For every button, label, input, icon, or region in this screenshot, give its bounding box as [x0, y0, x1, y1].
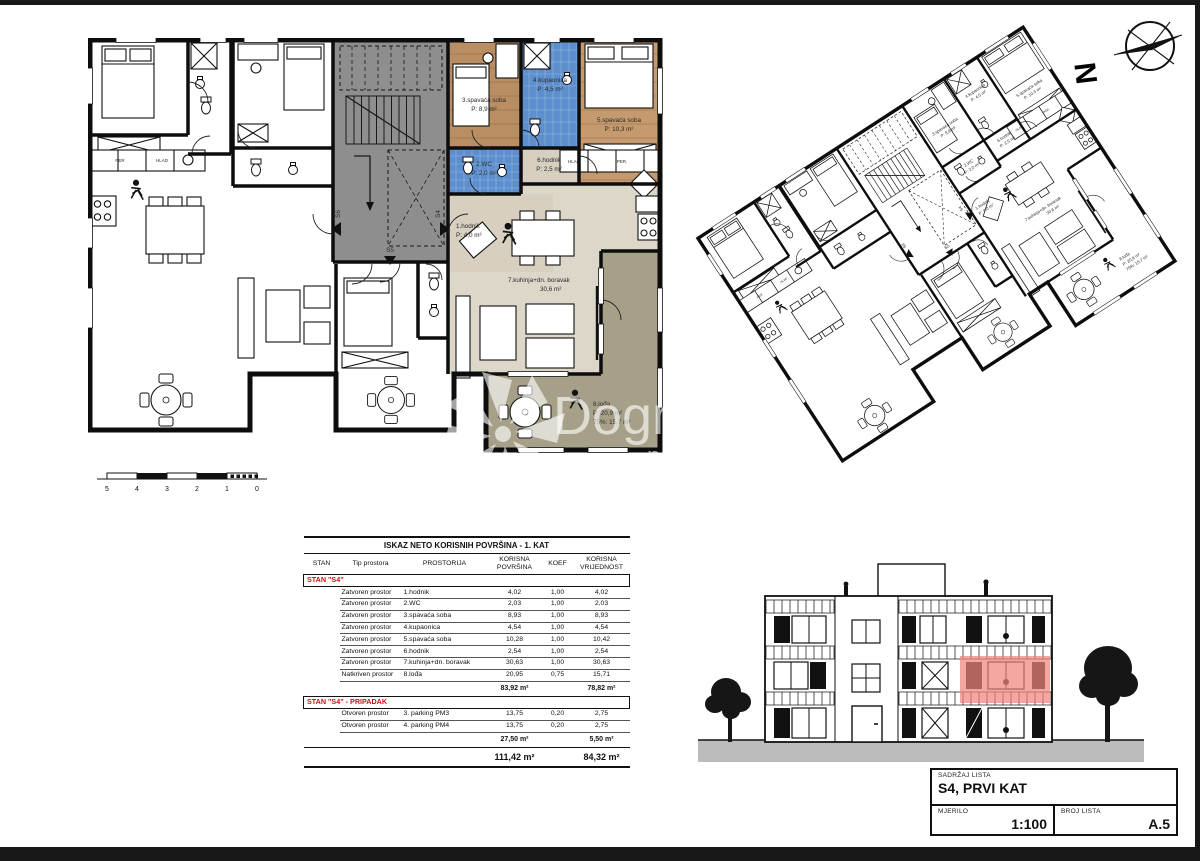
- scale-bar: 5 4 3 2 1 0: [95, 462, 270, 500]
- table-row: STAN "S4": [304, 574, 630, 586]
- col-prostorija: PROSTORIJA: [402, 554, 488, 575]
- table-row: Zatvoren prostor1.hodnik4,021,004,02: [304, 587, 630, 599]
- overview-plan: [696, 25, 1178, 475]
- table-row: Otvoren prostor4. parking PM413,750,202,…: [304, 720, 630, 732]
- sheet-number-value: A.5: [1061, 816, 1170, 832]
- scale-bar-segments: [107, 473, 258, 479]
- svg-text:0: 0: [255, 486, 259, 493]
- col-vrijednost: KORISNA VRIJEDNOST: [574, 554, 630, 575]
- col-povrsina: KORISNA POVRŠINA: [488, 554, 542, 575]
- table-row: Zatvoren prostor3.spavaća soba8,931,008,…: [304, 610, 630, 622]
- svg-text:1: 1: [225, 486, 229, 493]
- floor-plan-drawing: [88, 38, 663, 453]
- table-row: Zatvoren prostor7.kuhinja+dn. boravak30,…: [304, 657, 630, 669]
- tree-left: [705, 678, 751, 742]
- table-row: 111,42 m²84,32 m²: [304, 747, 630, 767]
- tree-right: [1079, 646, 1138, 742]
- floor-plan: 3.spavaća soba P: 8,9 m² 4.kupaonica P: …: [88, 38, 668, 478]
- site-plan-overview: N: [688, 8, 1193, 508]
- table-row: Zatvoren prostor5.spavaća soba10,281,001…: [304, 634, 630, 646]
- title-block-content-row: SADRŽAJ LISTA S4, PRVI KAT: [932, 770, 1176, 806]
- table-row: Natkriven prostor8.lođa20,950,7515,71: [304, 669, 630, 681]
- table-header-row: STAN Tip prostora PROSTORIJA KORISNA POV…: [304, 554, 630, 575]
- sheet-content-value: S4, PRVI KAT: [938, 780, 1170, 796]
- areas-table-body: STAN "S4"Zatvoren prostor1.hodnik4,021,0…: [304, 574, 630, 767]
- table-row: Zatvoren prostor4.kupaonica4,541,004,54: [304, 622, 630, 634]
- svg-text:5: 5: [105, 486, 109, 493]
- table-title: ISKAZ NETO KORISNIH POVRŠINA - 1. KAT: [304, 537, 630, 554]
- ground-strip: [698, 740, 1144, 762]
- svg-text:2: 2: [195, 486, 199, 493]
- title-block: SADRŽAJ LISTA S4, PRVI KAT MJERILO 1:100…: [930, 768, 1178, 836]
- svg-text:4: 4: [135, 486, 139, 493]
- sheet-number-label: BROJ LISTA: [1061, 808, 1170, 815]
- scale-bar-numbers: 5 4 3 2 1 0: [105, 486, 259, 493]
- scale-label: MJERILO: [938, 808, 1047, 815]
- table-title-row: ISKAZ NETO KORISNIH POVRŠINA - 1. KAT: [304, 537, 630, 554]
- scale-value: 1:100: [938, 816, 1047, 832]
- svg-text:3: 3: [165, 486, 169, 493]
- table-row: 27,50 m²5,50 m²: [304, 732, 630, 747]
- elevation-drawing: [698, 556, 1144, 762]
- sheet-number-cell: BROJ LISTA A.5: [1053, 806, 1176, 834]
- sheet-content-label: SADRŽAJ LISTA: [938, 772, 1170, 779]
- table-row: Zatvoren prostor2.WC2,031,002,03: [304, 598, 630, 610]
- scale-cell: MJERILO 1:100: [932, 806, 1053, 834]
- col-koef: KOEF: [542, 554, 574, 575]
- penthouse: [878, 564, 945, 597]
- col-stan: STAN: [304, 554, 340, 575]
- s4-highlight: [960, 656, 1050, 703]
- north-label: N: [1069, 60, 1104, 86]
- frame-top: [0, 0, 1200, 5]
- table-row: STAN "S4" - PRIPADAK: [304, 696, 630, 708]
- col-tip: Tip prostora: [340, 554, 402, 575]
- drawing-sheet: { "page": {"background": "#ffffff", "fra…: [0, 0, 1200, 861]
- table-row: 83,92 m²78,82 m²: [304, 681, 630, 696]
- north-arrow: N: [1069, 22, 1182, 86]
- frame-bottom: [0, 847, 1200, 861]
- table-row: Zatvoren prostor6.hodnik2,541,002,54: [304, 646, 630, 658]
- frame-right: [1195, 0, 1200, 861]
- table-row: Otvoren prostor3. parking PM313,750,202,…: [304, 708, 630, 720]
- areas-table: ISKAZ NETO KORISNIH POVRŠINA - 1. KAT ST…: [303, 536, 630, 768]
